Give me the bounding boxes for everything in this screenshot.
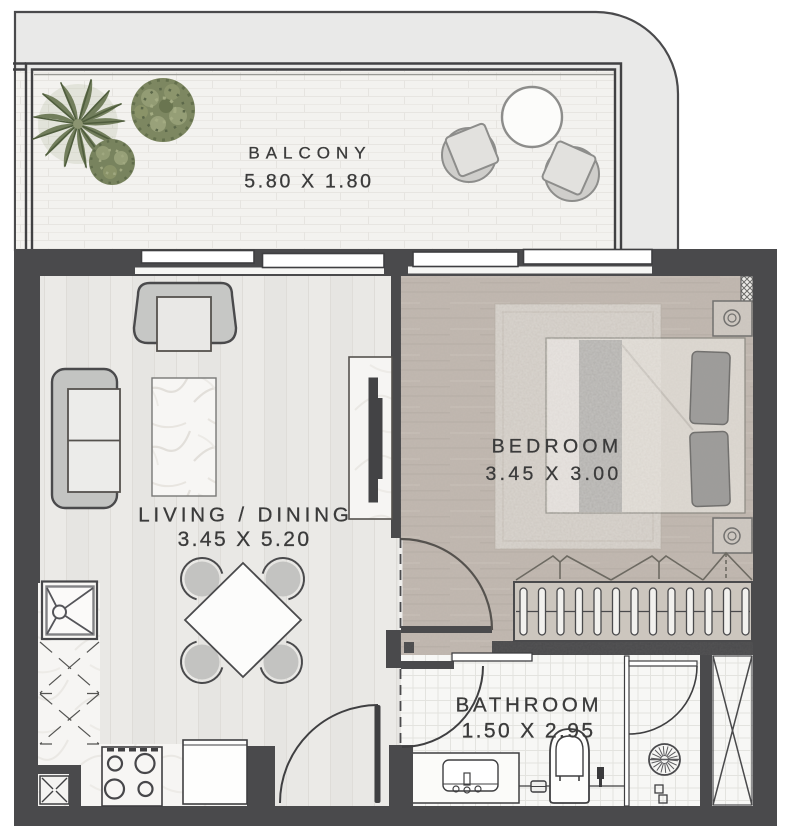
svg-text:3.45 X 5.20: 3.45 X 5.20: [178, 528, 312, 551]
svg-text:3.45 X 3.00: 3.45 X 3.00: [485, 463, 621, 485]
svg-text:BATHROOM: BATHROOM: [456, 695, 603, 717]
svg-text:BEDROOM: BEDROOM: [492, 436, 623, 458]
svg-text:BALCONY: BALCONY: [248, 144, 371, 163]
svg-text:5.80 X 1.80: 5.80 X 1.80: [244, 171, 373, 193]
svg-text:LIVING / DINING: LIVING / DINING: [138, 504, 353, 527]
svg-text:1.50 X 2.95: 1.50 X 2.95: [462, 720, 596, 743]
